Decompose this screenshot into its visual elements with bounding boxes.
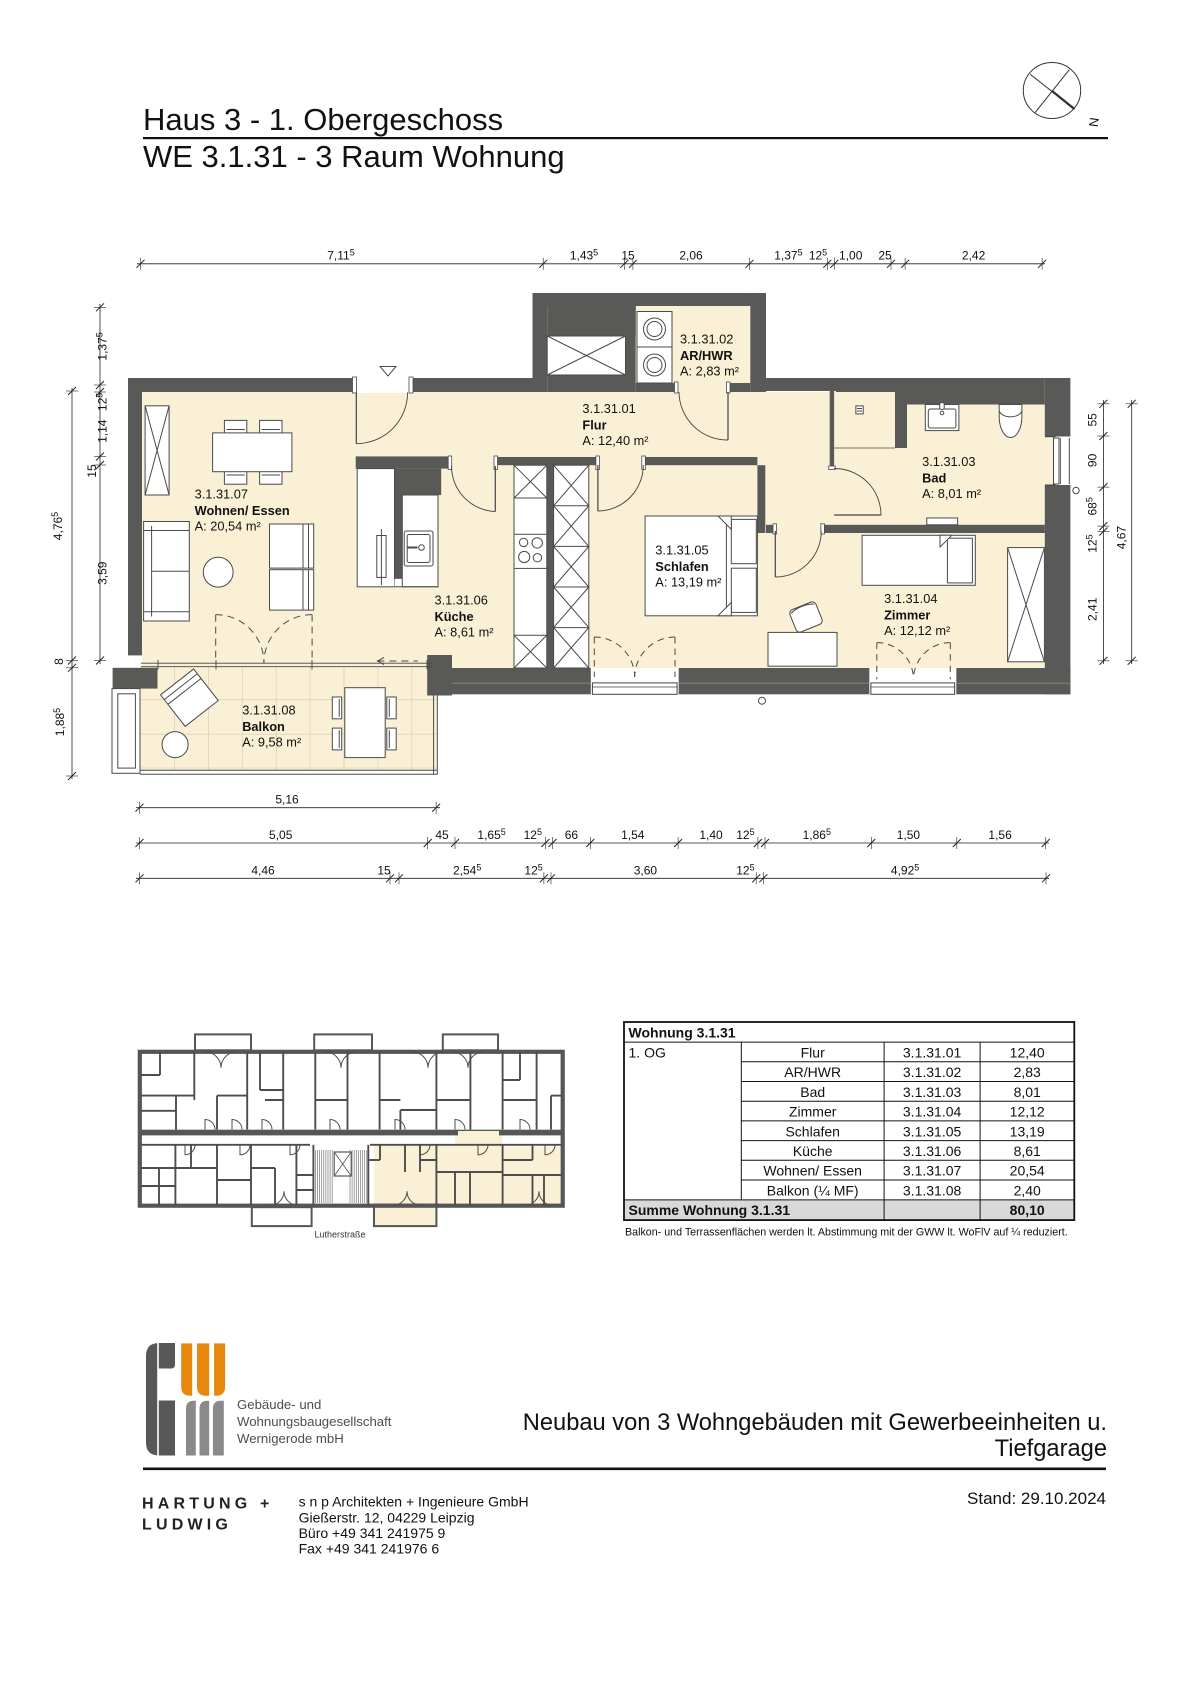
svg-text:Balkon (¼ MF): Balkon (¼ MF) <box>767 1182 859 1198</box>
svg-text:3.1.31.02: 3.1.31.02 <box>903 1064 962 1080</box>
svg-text:1,865: 1,865 <box>803 827 831 842</box>
svg-text:3.1.31.07: 3.1.31.07 <box>903 1163 962 1179</box>
svg-text:Balkon- und Terrassenflächen w: Balkon- und Terrassenflächen werden lt. … <box>625 1227 1068 1239</box>
svg-text:Wohnen/ Essen: Wohnen/ Essen <box>763 1163 862 1179</box>
svg-text:Gebäude- und: Gebäude- und <box>237 1397 321 1412</box>
svg-text:3.1.31.06: 3.1.31.06 <box>435 593 488 608</box>
svg-text:Wohnungsbaugesellschaft: Wohnungsbaugesellschaft <box>237 1414 392 1429</box>
svg-text:125: 125 <box>524 827 542 842</box>
svg-text:Schlafen: Schlafen <box>655 559 709 574</box>
svg-text:AR/HWR: AR/HWR <box>680 348 733 363</box>
svg-text:1,00: 1,00 <box>839 249 863 263</box>
svg-text:125: 125 <box>524 862 542 877</box>
svg-text:Flur: Flur <box>801 1045 825 1061</box>
svg-text:3.1.31.03: 3.1.31.03 <box>922 454 975 469</box>
svg-text:12,40: 12,40 <box>1010 1045 1045 1061</box>
svg-text:4,765: 4,765 <box>50 512 65 540</box>
svg-text:s n p Architekten + Ingenieure: s n p Architekten + Ingenieure GmbH <box>299 1494 529 1510</box>
svg-text:A: 12,12 m²: A: 12,12 m² <box>884 623 951 638</box>
svg-text:Zimmer: Zimmer <box>884 608 930 623</box>
svg-text:1,40: 1,40 <box>699 828 723 842</box>
svg-text:A: 8,61 m²: A: 8,61 m² <box>435 625 495 640</box>
svg-text:Wohnen/ Essen: Wohnen/ Essen <box>195 503 290 518</box>
svg-text:WE 3.1.31 - 3 Raum Wohnung: WE 3.1.31 - 3 Raum Wohnung <box>143 139 565 174</box>
svg-text:Bad: Bad <box>800 1084 825 1100</box>
svg-text:A: 12,40 m²: A: 12,40 m² <box>582 433 649 448</box>
svg-text:2,545: 2,545 <box>453 862 481 877</box>
svg-text:4,925: 4,925 <box>891 862 919 877</box>
svg-text:3.1.31.08: 3.1.31.08 <box>242 703 295 718</box>
svg-text:5,16: 5,16 <box>275 793 299 807</box>
svg-text:Zimmer: Zimmer <box>789 1104 837 1120</box>
svg-text:A: 20,54 m²: A: 20,54 m² <box>195 519 262 534</box>
svg-text:A: 13,19 m²: A: 13,19 m² <box>655 575 722 590</box>
svg-text:90: 90 <box>1086 453 1100 467</box>
svg-text:4,67: 4,67 <box>1115 526 1129 550</box>
svg-text:HARTUNG +: HARTUNG + <box>142 1496 274 1513</box>
svg-text:125: 125 <box>809 248 827 263</box>
svg-text:125: 125 <box>736 827 754 842</box>
svg-text:Summe Wohnung 3.1.31: Summe Wohnung 3.1.31 <box>629 1202 791 1218</box>
svg-text:7,115: 7,115 <box>327 248 354 263</box>
svg-text:3.1.31.05: 3.1.31.05 <box>655 543 708 558</box>
svg-text:80,10: 80,10 <box>1010 1202 1045 1218</box>
svg-text:Flur: Flur <box>582 418 606 433</box>
svg-text:Schlafen: Schlafen <box>785 1123 839 1139</box>
svg-text:3.1.31.04: 3.1.31.04 <box>884 591 937 606</box>
svg-text:15: 15 <box>621 249 635 263</box>
svg-text:3.1.31.05: 3.1.31.05 <box>903 1123 962 1139</box>
svg-text:45: 45 <box>435 828 449 842</box>
svg-text:AR/HWR: AR/HWR <box>784 1064 841 1080</box>
svg-text:1. OG: 1. OG <box>629 1045 666 1061</box>
svg-text:15: 15 <box>85 464 99 478</box>
svg-text:3.1.31.01: 3.1.31.01 <box>903 1045 962 1061</box>
svg-text:N: N <box>1086 117 1102 128</box>
svg-text:2,41: 2,41 <box>1086 597 1100 621</box>
svg-text:1,54: 1,54 <box>621 828 645 842</box>
svg-text:3.1.31.06: 3.1.31.06 <box>903 1143 962 1159</box>
svg-text:2,40: 2,40 <box>1014 1182 1041 1198</box>
svg-text:Haus 3 - 1. Obergeschoss: Haus 3 - 1. Obergeschoss <box>143 102 503 137</box>
svg-text:685: 685 <box>1085 497 1100 515</box>
svg-text:20,54: 20,54 <box>1010 1163 1045 1179</box>
svg-text:1,655: 1,655 <box>477 827 505 842</box>
svg-text:5,05: 5,05 <box>269 828 293 842</box>
svg-text:Wernigerode mbH: Wernigerode mbH <box>237 1431 344 1446</box>
svg-text:2,42: 2,42 <box>962 249 986 263</box>
svg-text:Fax +49 341 241976 6: Fax +49 341 241976 6 <box>299 1541 440 1557</box>
svg-text:8: 8 <box>52 658 66 665</box>
svg-text:8,01: 8,01 <box>1014 1084 1041 1100</box>
svg-text:8,61: 8,61 <box>1014 1143 1041 1159</box>
svg-text:3,60: 3,60 <box>634 863 658 877</box>
svg-text:Gießerstr. 12, 04229 Leipzig: Gießerstr. 12, 04229 Leipzig <box>299 1509 475 1525</box>
svg-text:66: 66 <box>565 828 579 842</box>
svg-text:3.1.31.02: 3.1.31.02 <box>680 332 733 347</box>
svg-text:125: 125 <box>1085 534 1100 552</box>
svg-text:1,50: 1,50 <box>897 828 921 842</box>
svg-text:Lutherstraße: Lutherstraße <box>314 1230 365 1240</box>
svg-text:Balkon: Balkon <box>242 719 285 734</box>
svg-text:2,83: 2,83 <box>1014 1064 1041 1080</box>
svg-text:A: 9,58 m²: A: 9,58 m² <box>242 735 302 750</box>
svg-text:3.1.31.08: 3.1.31.08 <box>903 1182 962 1198</box>
svg-text:1,56: 1,56 <box>988 828 1012 842</box>
svg-text:Büro +49 341 241975 9: Büro +49 341 241975 9 <box>299 1525 446 1541</box>
svg-text:A: 2,83 m²: A: 2,83 m² <box>680 364 740 379</box>
svg-text:3.1.31.01: 3.1.31.01 <box>582 401 635 416</box>
svg-text:Wohnung 3.1.31: Wohnung 3.1.31 <box>629 1025 736 1041</box>
svg-text:LUDWIG: LUDWIG <box>142 1516 232 1533</box>
svg-text:Küche: Küche <box>793 1143 833 1159</box>
svg-text:4,46: 4,46 <box>251 863 275 877</box>
svg-text:Stand: 29.10.2024: Stand: 29.10.2024 <box>967 1489 1106 1508</box>
svg-text:2,06: 2,06 <box>679 249 703 263</box>
svg-text:13,19: 13,19 <box>1010 1123 1045 1139</box>
svg-text:1,14: 1,14 <box>96 419 110 443</box>
svg-text:1,885: 1,885 <box>52 708 67 736</box>
svg-text:3.1.31.07: 3.1.31.07 <box>195 487 248 502</box>
svg-text:3,59: 3,59 <box>96 561 110 585</box>
svg-text:Bad: Bad <box>922 471 946 486</box>
svg-text:15: 15 <box>377 863 391 877</box>
svg-text:125: 125 <box>736 862 754 877</box>
svg-text:Tiefgarage: Tiefgarage <box>995 1436 1107 1462</box>
svg-text:A: 8,01 m²: A: 8,01 m² <box>922 486 982 501</box>
svg-text:55: 55 <box>1086 413 1100 427</box>
svg-text:25: 25 <box>878 249 892 263</box>
svg-text:12,12: 12,12 <box>1010 1104 1045 1120</box>
svg-text:Küche: Küche <box>435 609 474 624</box>
svg-text:3.1.31.04: 3.1.31.04 <box>903 1104 962 1120</box>
svg-text:Neubau von 3 Wohngebäuden mit: Neubau von 3 Wohngebäuden mit Gewerbeein… <box>523 1410 1107 1436</box>
svg-text:1,375: 1,375 <box>774 248 802 263</box>
svg-text:125: 125 <box>95 393 110 411</box>
svg-text:1,435: 1,435 <box>570 248 598 263</box>
svg-text:1,375: 1,375 <box>95 332 110 360</box>
svg-text:3.1.31.03: 3.1.31.03 <box>903 1084 962 1100</box>
